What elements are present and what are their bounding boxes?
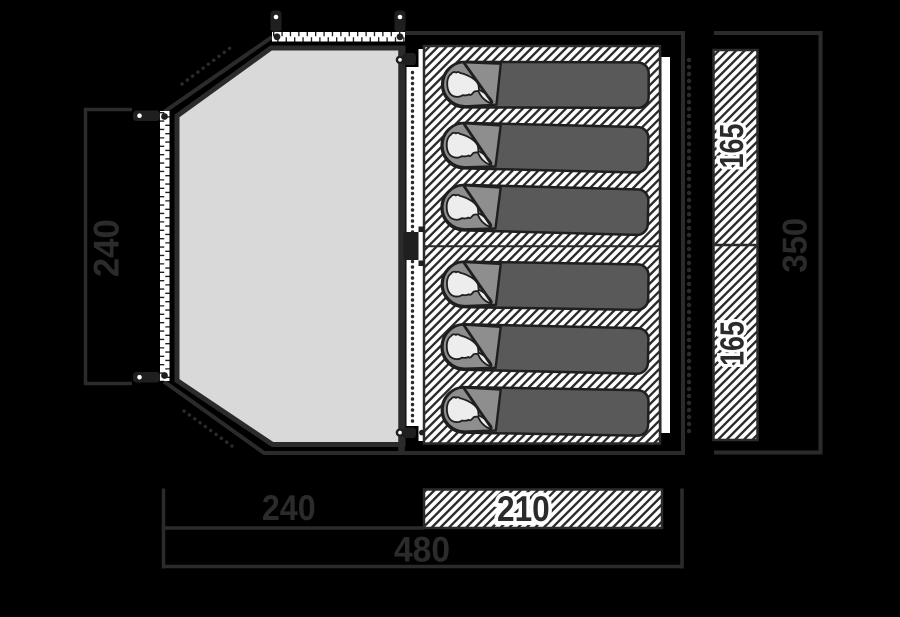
svg-text:350: 350 xyxy=(777,218,815,273)
svg-text:480: 480 xyxy=(394,530,450,570)
svg-text:210: 210 xyxy=(497,489,550,529)
svg-text:165: 165 xyxy=(714,124,751,169)
svg-text:165: 165 xyxy=(715,321,752,366)
svg-text:240: 240 xyxy=(262,488,316,528)
svg-text:240: 240 xyxy=(86,219,126,277)
